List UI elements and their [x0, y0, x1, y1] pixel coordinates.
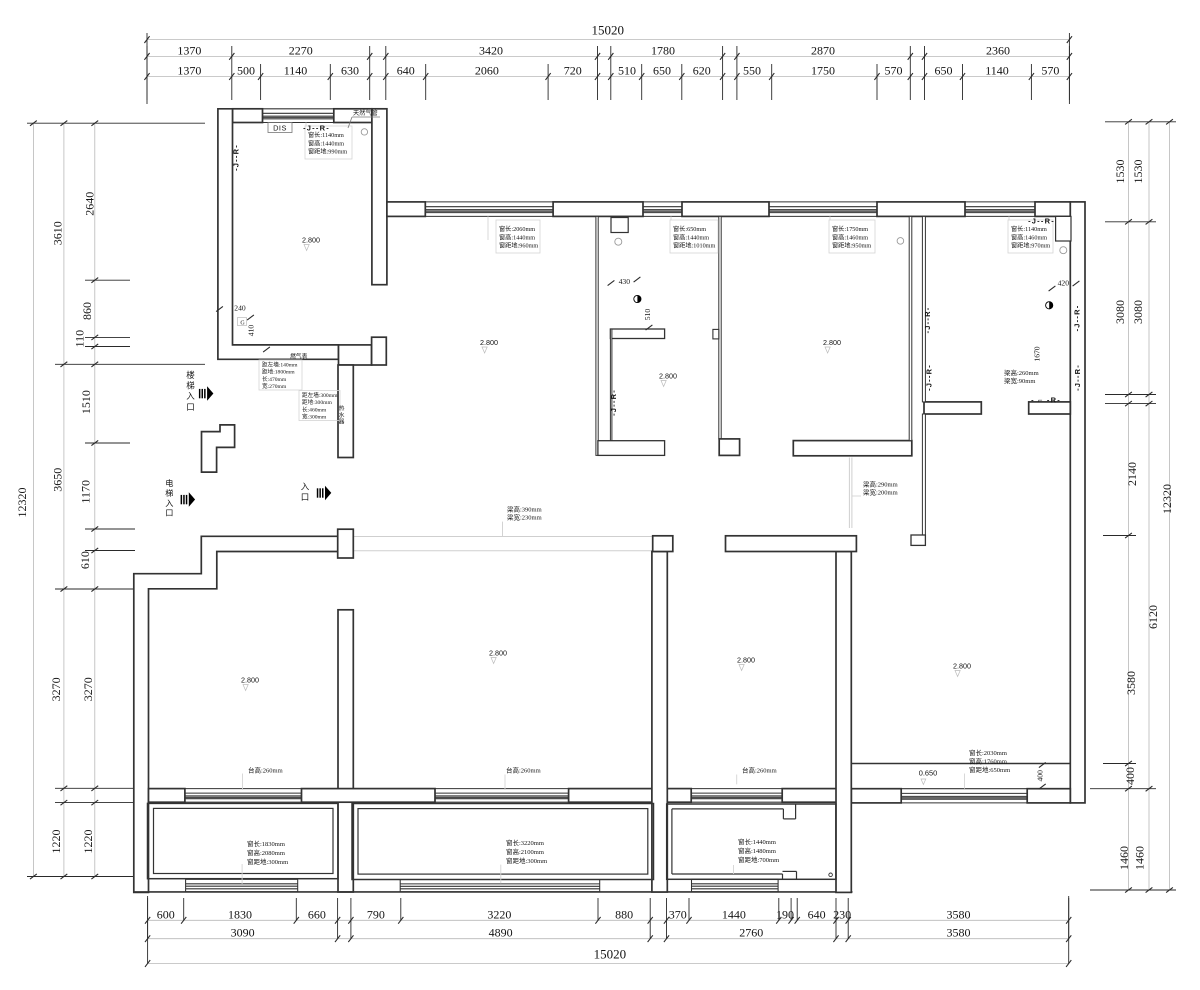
svg-text:窗长:650mm: 窗长:650mm	[673, 225, 706, 233]
svg-text:-J--R-: -J--R-	[1028, 217, 1055, 226]
svg-text:2.800: 2.800	[489, 649, 507, 658]
svg-text:630: 630	[341, 64, 359, 78]
svg-text:天然气管: 天然气管	[353, 109, 378, 117]
svg-text:窗距地:1010mm: 窗距地:1010mm	[673, 242, 715, 250]
svg-text:190: 190	[776, 908, 794, 922]
svg-text:梯: 梯	[186, 381, 195, 391]
svg-text:窗高:1440mm: 窗高:1440mm	[499, 233, 535, 241]
svg-text:2270: 2270	[289, 44, 313, 58]
svg-text:550: 550	[743, 64, 761, 78]
svg-text:-J--R-: -J--R-	[303, 124, 330, 133]
svg-text:窗高:1480mm: 窗高:1480mm	[738, 846, 776, 855]
svg-text:窗高:2100mm: 窗高:2100mm	[506, 847, 544, 856]
svg-text:1140: 1140	[284, 64, 308, 78]
svg-text:1140: 1140	[985, 64, 1009, 78]
svg-text:650: 650	[653, 64, 671, 78]
svg-text:420: 420	[1058, 279, 1070, 288]
svg-text:790: 790	[367, 908, 385, 922]
svg-text:窗距地:300mm: 窗距地:300mm	[247, 857, 288, 866]
svg-text:15020: 15020	[594, 947, 627, 962]
svg-text:距地:1800mm: 距地:1800mm	[262, 368, 295, 376]
svg-text:2140: 2140	[1125, 462, 1139, 486]
svg-text:6120: 6120	[1146, 605, 1160, 629]
svg-text:梁宽:230mm: 梁宽:230mm	[507, 513, 542, 522]
svg-text:400: 400	[1035, 770, 1044, 782]
svg-text:梁高:260mm: 梁高:260mm	[1004, 368, 1039, 377]
svg-text:720: 720	[564, 64, 582, 78]
svg-text:窗长:1750mm: 窗长:1750mm	[832, 225, 868, 233]
svg-text:梁宽:90mm: 梁宽:90mm	[1004, 376, 1035, 385]
svg-text:3580: 3580	[1124, 671, 1138, 695]
svg-text:410: 410	[247, 325, 256, 337]
svg-text:-J--R-: -J--R-	[923, 307, 932, 334]
svg-text:距地:300mm: 距地:300mm	[302, 398, 332, 406]
svg-text:1670: 1670	[1032, 346, 1041, 361]
svg-text:2.800: 2.800	[823, 338, 841, 347]
svg-text:口: 口	[165, 509, 173, 518]
svg-text:窗长:1140mm: 窗长:1140mm	[1011, 225, 1047, 233]
svg-text:430: 430	[619, 277, 631, 286]
svg-text:窗长:3220mm: 窗长:3220mm	[506, 838, 544, 847]
svg-text:窗高:1440mm: 窗高:1440mm	[673, 233, 709, 241]
svg-text:窗距地:970mm: 窗距地:970mm	[1011, 242, 1050, 250]
svg-text:-J--R-: -J--R-	[1073, 364, 1082, 391]
svg-text:窗长:1440mm: 窗长:1440mm	[738, 837, 776, 846]
svg-text:1370: 1370	[177, 64, 201, 78]
svg-text:窗距地:950mm: 窗距地:950mm	[832, 242, 871, 250]
svg-text:1750: 1750	[811, 64, 835, 78]
svg-text:2360: 2360	[986, 44, 1010, 58]
svg-text:口: 口	[186, 402, 195, 412]
svg-text:4890: 4890	[489, 925, 513, 939]
svg-text:1370: 1370	[177, 44, 201, 58]
svg-text:器: 器	[339, 419, 345, 426]
svg-text:1780: 1780	[651, 44, 675, 58]
svg-text:DIS: DIS	[273, 124, 287, 133]
svg-text:1460: 1460	[1117, 846, 1131, 870]
svg-text:3610: 3610	[51, 221, 65, 245]
svg-text:1440: 1440	[722, 908, 746, 922]
svg-text:窗高:1440mm: 窗高:1440mm	[308, 139, 344, 147]
svg-text:640: 640	[397, 64, 415, 78]
svg-text:窗长:1830mm: 窗长:1830mm	[247, 839, 285, 848]
svg-text:窗高:1460mm: 窗高:1460mm	[1011, 233, 1047, 241]
svg-text:110: 110	[73, 330, 87, 348]
svg-text:2.800: 2.800	[737, 656, 755, 665]
svg-text:3090: 3090	[231, 925, 255, 939]
svg-text:3080: 3080	[1131, 300, 1145, 324]
svg-text:宽:300mm: 宽:300mm	[302, 413, 327, 421]
svg-text:1510: 1510	[79, 390, 93, 414]
svg-text:长:460mm: 长:460mm	[302, 405, 327, 413]
svg-text:1170: 1170	[79, 480, 93, 504]
svg-text:2640: 2640	[83, 192, 97, 216]
svg-text:240: 240	[234, 304, 246, 313]
svg-text:水: 水	[339, 411, 345, 419]
svg-text:窗距地:960mm: 窗距地:960mm	[499, 242, 538, 250]
svg-text:梁高:390mm: 梁高:390mm	[507, 505, 542, 514]
svg-text:3580: 3580	[947, 925, 971, 939]
svg-text:-J--R-: -J--R-	[232, 144, 241, 171]
svg-text:入: 入	[186, 391, 195, 401]
svg-text:窗距地:990mm: 窗距地:990mm	[308, 148, 347, 156]
svg-text:电: 电	[165, 478, 173, 488]
svg-text:570: 570	[1041, 64, 1059, 78]
svg-text:燃气表: 燃气表	[290, 352, 308, 360]
svg-text:窗长:2060mm: 窗长:2060mm	[499, 225, 535, 233]
svg-text:窗距地:650mm: 窗距地:650mm	[969, 765, 1010, 774]
svg-text:650: 650	[935, 64, 953, 78]
svg-text:880: 880	[615, 908, 633, 922]
svg-text:660: 660	[308, 908, 326, 922]
svg-text:230: 230	[833, 908, 851, 922]
svg-text:1460: 1460	[1133, 846, 1147, 870]
svg-text:2870: 2870	[811, 44, 835, 58]
svg-text:3080: 3080	[1113, 300, 1127, 324]
svg-text:2760: 2760	[739, 925, 763, 939]
svg-text:窗高:1760mm: 窗高:1760mm	[969, 757, 1007, 766]
svg-text:3220: 3220	[487, 908, 511, 922]
svg-text:3270: 3270	[49, 677, 63, 701]
svg-text:2.800: 2.800	[302, 236, 320, 245]
svg-text:3270: 3270	[81, 677, 95, 701]
svg-text:3420: 3420	[479, 44, 503, 58]
svg-text:15020: 15020	[592, 23, 625, 38]
svg-text:510: 510	[643, 309, 652, 321]
svg-text:610: 610	[78, 551, 92, 569]
svg-text:台高:260mm: 台高:260mm	[742, 766, 777, 775]
svg-text:0.650: 0.650	[919, 769, 938, 778]
svg-text:窗高:2080mm: 窗高:2080mm	[247, 848, 285, 857]
svg-text:距左墙:140mm: 距左墙:140mm	[262, 361, 298, 369]
svg-text:500: 500	[237, 64, 255, 78]
svg-text:2.800: 2.800	[480, 338, 498, 347]
svg-text:-J--R-: -J--R-	[609, 389, 618, 416]
svg-text:梯: 梯	[165, 488, 173, 498]
svg-text:1530: 1530	[1131, 160, 1145, 184]
svg-text:热: 热	[339, 404, 345, 412]
svg-text:1530: 1530	[1113, 160, 1127, 184]
svg-text:-J--R-: -J--R-	[1073, 305, 1082, 332]
svg-text:2060: 2060	[475, 64, 499, 78]
svg-text:窗距地:700mm: 窗距地:700mm	[738, 855, 779, 864]
svg-text:1220: 1220	[49, 830, 63, 854]
svg-text:620: 620	[693, 64, 711, 78]
svg-text:640: 640	[808, 908, 826, 922]
svg-text:入: 入	[301, 482, 310, 492]
svg-text:1220: 1220	[81, 830, 95, 854]
svg-text:600: 600	[157, 908, 175, 922]
svg-text:860: 860	[80, 302, 94, 320]
svg-text:12320: 12320	[1160, 484, 1174, 514]
svg-text:长:470mm: 长:470mm	[262, 375, 287, 383]
svg-text:370: 370	[669, 908, 687, 922]
svg-text:窗长:2030mm: 窗长:2030mm	[969, 748, 1007, 757]
svg-text:台高:260mm: 台高:260mm	[248, 766, 283, 775]
svg-text:-J--R-: -J--R-	[925, 364, 934, 391]
svg-text:2.800: 2.800	[241, 676, 259, 685]
svg-text:口: 口	[301, 492, 310, 502]
svg-text:宽:270mm: 宽:270mm	[262, 382, 287, 390]
svg-text:12320: 12320	[15, 488, 29, 518]
svg-text:窗距地:300mm: 窗距地:300mm	[506, 856, 547, 865]
svg-text:- ⌐ -R-: - ⌐ -R-	[1031, 396, 1061, 405]
svg-text:梁高:290mm: 梁高:290mm	[863, 480, 898, 489]
svg-text:2.800: 2.800	[659, 372, 677, 381]
svg-text:2.800: 2.800	[953, 662, 971, 671]
svg-text:距左墙:300mm: 距左墙:300mm	[302, 391, 338, 399]
svg-text:3580: 3580	[947, 908, 971, 922]
svg-text:台高:260mm: 台高:260mm	[506, 766, 541, 775]
svg-text:窗高:1460mm: 窗高:1460mm	[832, 233, 868, 241]
svg-text:入: 入	[165, 499, 173, 508]
svg-text:570: 570	[885, 64, 903, 78]
svg-text:梁宽:200mm: 梁宽:200mm	[863, 488, 898, 497]
svg-text:510: 510	[618, 64, 636, 78]
svg-text:3650: 3650	[51, 468, 65, 492]
svg-text:400: 400	[1123, 767, 1137, 785]
svg-text:1830: 1830	[228, 908, 252, 922]
svg-text:楼: 楼	[186, 370, 195, 380]
